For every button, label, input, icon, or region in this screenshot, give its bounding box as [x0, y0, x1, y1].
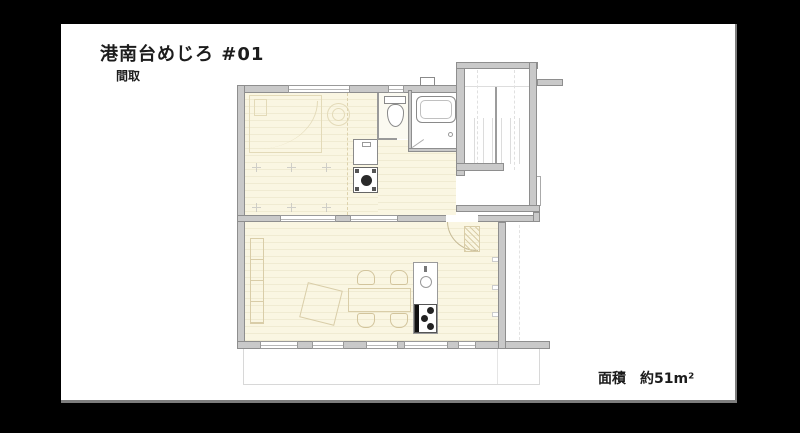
- washer-corner: [372, 169, 376, 173]
- side-shelf: [250, 238, 264, 324]
- window-bottom: [458, 341, 476, 349]
- balcony: [243, 349, 540, 385]
- blanket-curve: [258, 101, 318, 149]
- burner-icon: [427, 307, 434, 314]
- stair-dash-line: [514, 70, 515, 170]
- dining-chair: [390, 313, 408, 328]
- washer-corner: [372, 187, 376, 191]
- wall-stair-right: [529, 62, 537, 212]
- floor-grid-tick: [322, 163, 331, 172]
- stove-edge: [415, 305, 419, 332]
- floor-plan: [0, 0, 800, 433]
- floor-grid-tick: [287, 163, 296, 172]
- dining-table: [348, 288, 411, 312]
- washbasin: [353, 139, 378, 165]
- wall-living-right: [498, 222, 506, 349]
- staircase: [466, 118, 528, 164]
- stair-dash-line: [477, 70, 478, 170]
- washer-door-icon: [361, 175, 372, 186]
- round-chair-inner: [332, 108, 345, 121]
- wall-stair-bottom-left: [456, 163, 504, 171]
- wall-top: [237, 85, 464, 93]
- balcony-divider-line: [497, 349, 498, 384]
- entrance-shelf: [464, 226, 480, 252]
- bed: [249, 95, 322, 153]
- wall-toilet-left: [377, 93, 379, 140]
- dining-chair: [357, 270, 375, 285]
- faucet-icon: [424, 266, 427, 272]
- wall-corridor-bottom: [456, 205, 540, 212]
- wall-corridor-stub: [533, 212, 540, 222]
- burner-icon: [421, 315, 428, 322]
- stair-landing-line: [465, 86, 529, 87]
- bathtub: [416, 96, 456, 123]
- floor-grid-tick: [252, 203, 261, 212]
- wall-bath-left: [408, 90, 412, 150]
- gas-stove: [414, 304, 437, 333]
- kitchen-sink: [420, 276, 432, 288]
- washbasin-faucet: [362, 142, 371, 147]
- window-bottom: [312, 341, 344, 349]
- sliding-door: [280, 215, 336, 222]
- drain-icon: [448, 132, 453, 137]
- floor-grid-tick: [322, 203, 331, 212]
- toilet-tank: [384, 96, 406, 104]
- washing-machine: [353, 167, 378, 193]
- corridor-dashed-line: [519, 225, 520, 340]
- window-toilet: [388, 85, 404, 93]
- entrance-opening: [446, 215, 478, 222]
- sliding-door: [350, 215, 398, 222]
- wall-stair-left: [456, 62, 465, 176]
- pipe-duct: [420, 77, 435, 86]
- window-bottom: [260, 341, 298, 349]
- burner-icon: [427, 323, 434, 330]
- window-bottom: [404, 341, 448, 349]
- window-top: [288, 85, 350, 93]
- floor-grid-tick: [287, 203, 296, 212]
- partition-track-line: [347, 93, 348, 215]
- floor-grid-tick: [252, 163, 261, 172]
- washer-corner: [355, 169, 359, 173]
- wall-bath-bottom: [408, 148, 462, 152]
- dining-chair: [357, 313, 375, 328]
- letterboxed-screen: 港南台めじろ #01 間取 面積 約51m²: [0, 0, 800, 433]
- bathtub-inner: [420, 100, 452, 119]
- wall-toilet-bottom: [377, 138, 397, 140]
- dining-chair: [390, 270, 408, 285]
- stair-rail: [495, 87, 497, 164]
- washer-corner: [355, 187, 359, 191]
- wall-right-ext: [537, 79, 563, 86]
- window-bottom: [366, 341, 398, 349]
- wall-stair-top: [456, 62, 538, 69]
